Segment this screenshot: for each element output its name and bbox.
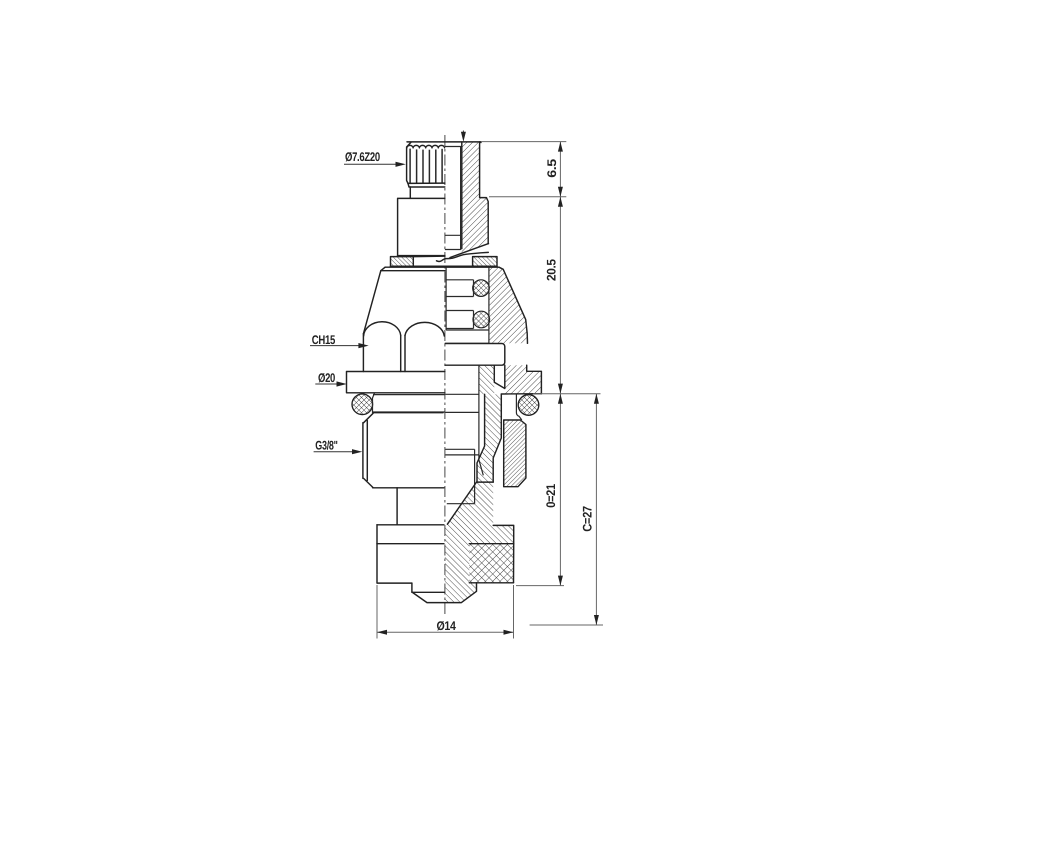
svg-text:CH15: CH15 [312, 333, 336, 347]
svg-text:20.5: 20.5 [544, 259, 558, 281]
svg-text:Ø20: Ø20 [318, 371, 335, 385]
svg-text:G3/8": G3/8" [315, 438, 338, 452]
svg-text:Ø7.6Z20: Ø7.6Z20 [345, 150, 380, 164]
svg-text:6.5: 6.5 [545, 159, 559, 178]
svg-text:C=27: C=27 [580, 506, 594, 532]
svg-text:Ø14: Ø14 [437, 619, 456, 633]
svg-text:0=21: 0=21 [544, 484, 558, 508]
